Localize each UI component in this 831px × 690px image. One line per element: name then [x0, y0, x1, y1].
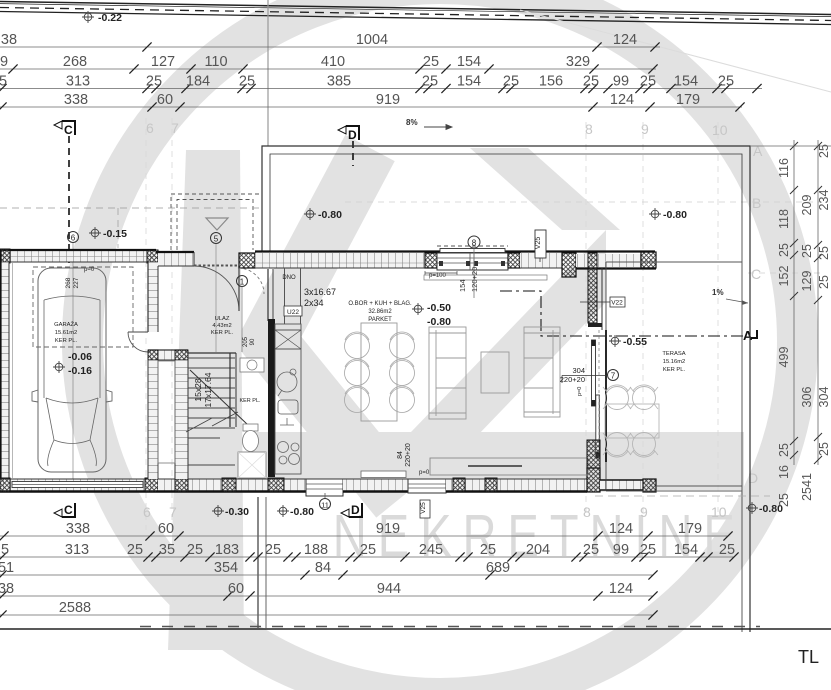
- svg-text:220+20: 220+20: [560, 375, 585, 384]
- svg-text:25: 25: [480, 542, 496, 558]
- svg-text:25: 25: [146, 74, 162, 90]
- svg-text:227: 227: [73, 277, 80, 288]
- svg-text:C: C: [64, 503, 73, 517]
- svg-text:268: 268: [65, 277, 72, 288]
- svg-text:7: 7: [611, 372, 616, 381]
- svg-text:17x17.64: 17x17.64: [203, 372, 213, 407]
- svg-text:9: 9: [641, 121, 649, 137]
- svg-text:-0.80: -0.80: [427, 316, 451, 328]
- svg-text:338: 338: [66, 521, 90, 537]
- svg-text:U22: U22: [287, 309, 299, 316]
- svg-text:O.BOR + KUH + BLAG.: O.BOR + KUH + BLAG.: [348, 301, 412, 307]
- svg-text:-0.55: -0.55: [623, 336, 647, 348]
- svg-text:919: 919: [376, 521, 400, 537]
- svg-text:9: 9: [640, 504, 648, 520]
- svg-text:209: 209: [800, 195, 814, 216]
- svg-text:90: 90: [250, 338, 256, 345]
- svg-text:156: 156: [539, 74, 563, 90]
- svg-text:124: 124: [609, 581, 633, 597]
- svg-text:118: 118: [777, 209, 791, 229]
- svg-text:3x16.67: 3x16.67: [304, 287, 336, 297]
- svg-text:124: 124: [610, 92, 634, 108]
- svg-text:-0.06: -0.06: [68, 351, 92, 363]
- svg-text:25: 25: [777, 243, 791, 257]
- svg-text:ULAZ: ULAZ: [215, 316, 230, 322]
- svg-text:51: 51: [0, 560, 14, 576]
- svg-text:304: 304: [572, 366, 585, 375]
- svg-text:V22: V22: [611, 300, 623, 307]
- svg-text:124: 124: [609, 521, 633, 537]
- svg-text:154: 154: [458, 279, 467, 292]
- svg-text:-0.80: -0.80: [290, 506, 314, 518]
- svg-text:25: 25: [718, 74, 734, 90]
- svg-text:329: 329: [566, 54, 590, 70]
- svg-text:6: 6: [146, 120, 154, 136]
- svg-text:25: 25: [583, 74, 599, 90]
- svg-text:1%: 1%: [712, 288, 724, 297]
- svg-text:124: 124: [613, 32, 637, 48]
- svg-text:p=0: p=0: [577, 387, 583, 396]
- svg-text:7: 7: [169, 504, 177, 520]
- svg-text:10: 10: [711, 504, 727, 520]
- svg-text:25: 25: [583, 542, 599, 558]
- svg-text:25: 25: [640, 74, 656, 90]
- svg-text:385: 385: [327, 74, 351, 90]
- svg-text:245: 245: [419, 542, 443, 558]
- svg-text:116: 116: [777, 158, 791, 178]
- svg-text:6: 6: [143, 504, 151, 520]
- svg-text:304: 304: [817, 387, 831, 408]
- svg-text:-0.80: -0.80: [318, 209, 342, 221]
- svg-text:TERASA: TERASA: [662, 351, 685, 357]
- svg-text:25: 25: [360, 542, 376, 558]
- svg-text:25: 25: [719, 542, 735, 558]
- svg-text:6: 6: [71, 234, 76, 243]
- svg-text:B: B: [752, 195, 761, 211]
- svg-text:8: 8: [472, 239, 477, 248]
- svg-text:110: 110: [204, 54, 227, 70]
- svg-text:16: 16: [777, 465, 791, 479]
- svg-text:32.86m2: 32.86m2: [368, 309, 392, 315]
- svg-text:129: 129: [800, 271, 814, 292]
- svg-text:154: 154: [457, 54, 481, 70]
- svg-text:25: 25: [640, 542, 656, 558]
- svg-text:15x28: 15x28: [193, 378, 203, 401]
- svg-text:306: 306: [800, 387, 814, 408]
- svg-text:179: 179: [676, 92, 700, 108]
- svg-text:9: 9: [0, 54, 8, 70]
- svg-text:154: 154: [674, 542, 698, 558]
- svg-text:GARAŽA: GARAŽA: [54, 320, 78, 328]
- svg-text:25: 25: [817, 275, 831, 289]
- svg-text:V25: V25: [420, 502, 427, 514]
- svg-text:C: C: [64, 123, 73, 137]
- svg-text:120+20: 120+20: [470, 267, 479, 292]
- svg-text:338: 338: [64, 92, 88, 108]
- svg-text:689: 689: [486, 560, 510, 576]
- svg-text:354: 354: [214, 560, 238, 576]
- svg-text:DNO: DNO: [282, 275, 296, 281]
- svg-text:234: 234: [817, 190, 831, 211]
- svg-text:184: 184: [186, 74, 210, 90]
- svg-text:5: 5: [214, 235, 219, 244]
- svg-text:25: 25: [239, 74, 255, 90]
- svg-text:944: 944: [377, 581, 401, 597]
- svg-text:A: A: [743, 328, 753, 343]
- svg-text:2541: 2541: [800, 473, 814, 501]
- svg-text:152: 152: [777, 266, 791, 287]
- svg-text:1004: 1004: [356, 32, 388, 48]
- svg-text:25: 25: [817, 246, 831, 260]
- svg-text:4.43m2: 4.43m2: [212, 323, 231, 329]
- svg-text:-0.30: -0.30: [225, 506, 249, 518]
- svg-text:-0.16: -0.16: [68, 365, 92, 377]
- svg-text:5: 5: [1, 542, 9, 558]
- svg-text:25: 25: [777, 493, 791, 507]
- svg-text:25: 25: [423, 54, 439, 70]
- svg-text:313: 313: [65, 542, 89, 558]
- svg-text:11: 11: [321, 501, 329, 510]
- svg-text:-0.22: -0.22: [98, 12, 122, 24]
- svg-text:25: 25: [817, 442, 831, 456]
- svg-text:2588: 2588: [59, 600, 91, 616]
- svg-text:TL: TL: [798, 647, 819, 667]
- svg-text:25: 25: [265, 542, 281, 558]
- svg-text:60: 60: [158, 521, 174, 537]
- svg-text:410: 410: [321, 54, 345, 70]
- svg-text:5: 5: [0, 74, 7, 90]
- svg-text:220+20: 220+20: [405, 443, 412, 467]
- svg-text:204: 204: [526, 542, 550, 558]
- svg-text:-0.15: -0.15: [103, 228, 127, 240]
- svg-text:179: 179: [678, 521, 702, 537]
- svg-text:313: 313: [66, 74, 90, 90]
- svg-text:15.16m2: 15.16m2: [663, 359, 686, 365]
- svg-text:p=0: p=0: [419, 470, 430, 476]
- svg-text:25: 25: [800, 244, 814, 258]
- svg-text:-0.50: -0.50: [427, 302, 451, 314]
- svg-text:99: 99: [613, 542, 629, 558]
- svg-text:KER PL.: KER PL.: [663, 367, 686, 373]
- svg-text:919: 919: [376, 92, 400, 108]
- svg-text:25: 25: [127, 542, 143, 558]
- svg-text:8: 8: [583, 504, 591, 520]
- svg-text:-0.80: -0.80: [663, 209, 687, 221]
- svg-text:35: 35: [159, 542, 175, 558]
- svg-text:499: 499: [777, 347, 791, 368]
- svg-text:15.61m2: 15.61m2: [55, 330, 78, 336]
- svg-text:127: 127: [151, 54, 175, 70]
- svg-text:25: 25: [777, 443, 791, 457]
- svg-text:84: 84: [397, 451, 404, 459]
- svg-text:PARKET: PARKET: [368, 317, 392, 323]
- svg-text:205: 205: [243, 336, 249, 347]
- svg-text:25: 25: [503, 74, 519, 90]
- svg-text:D: D: [348, 128, 357, 142]
- svg-text:V25: V25: [535, 237, 542, 250]
- svg-text:25: 25: [187, 542, 203, 558]
- svg-text:KER PL.: KER PL.: [55, 338, 78, 344]
- svg-text:60: 60: [228, 581, 244, 597]
- svg-text:2x34: 2x34: [304, 298, 324, 308]
- svg-text:183: 183: [215, 542, 239, 558]
- svg-text:99: 99: [613, 74, 629, 90]
- svg-text:38: 38: [1, 32, 17, 48]
- svg-text:25: 25: [422, 74, 438, 90]
- svg-text:p=100: p=100: [429, 273, 447, 279]
- svg-text:D: D: [351, 503, 360, 517]
- svg-text:A: A: [753, 143, 763, 159]
- svg-text:8%: 8%: [406, 118, 418, 127]
- svg-text:154: 154: [457, 74, 481, 90]
- svg-text:10: 10: [712, 122, 728, 138]
- svg-text:188: 188: [304, 542, 328, 558]
- svg-text:60: 60: [157, 92, 173, 108]
- svg-text:1: 1: [240, 278, 245, 287]
- svg-text:KER PL.: KER PL.: [211, 330, 234, 336]
- svg-text:KER PL.: KER PL.: [239, 398, 261, 404]
- svg-text:38: 38: [0, 581, 14, 597]
- svg-text:154: 154: [674, 74, 698, 90]
- svg-text:C: C: [751, 266, 761, 282]
- svg-text:84: 84: [315, 560, 331, 576]
- svg-text:268: 268: [63, 54, 87, 70]
